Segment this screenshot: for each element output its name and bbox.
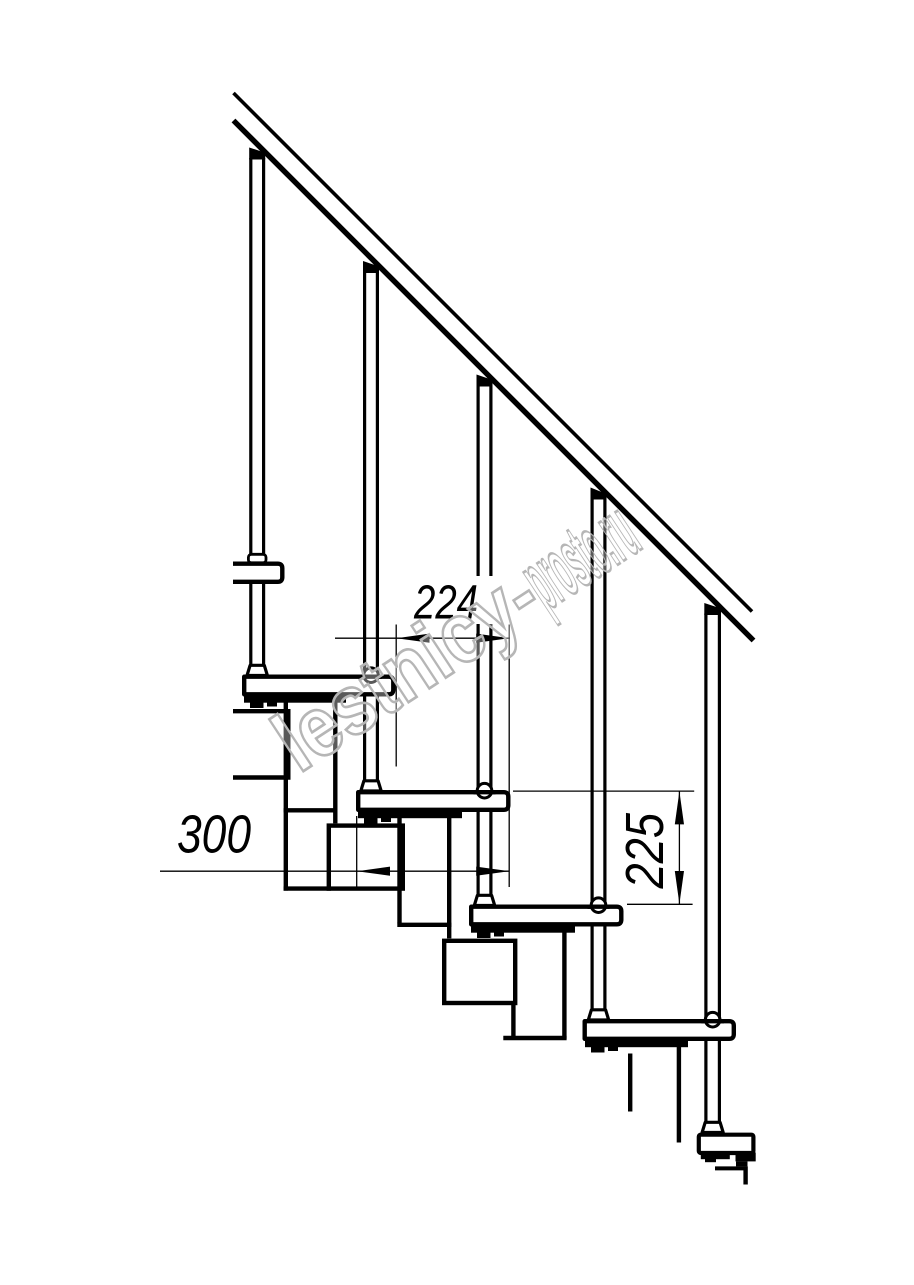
svg-text:225: 225 bbox=[615, 812, 675, 889]
svg-text:300: 300 bbox=[177, 805, 251, 865]
